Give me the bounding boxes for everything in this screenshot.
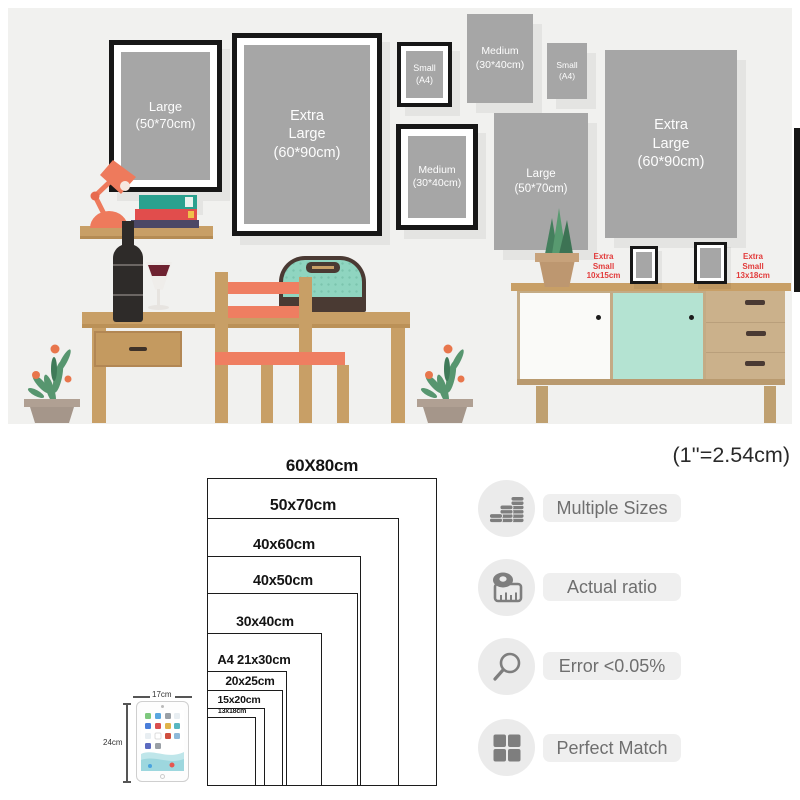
poster-label: Medium — [481, 45, 518, 58]
sideboard-drawers — [706, 291, 785, 383]
sideboard-door-white — [520, 293, 610, 380]
size-label-a4: A4 21x30cm — [217, 652, 290, 667]
tablet-camera — [161, 705, 164, 708]
handbag-handle-slot — [312, 266, 334, 269]
poster-size-label: (A4) — [559, 71, 575, 82]
drawer-handle — [745, 361, 765, 366]
poster-label: Large — [652, 135, 689, 154]
size-label-40x60: 40x60cm — [253, 536, 315, 553]
wall-poster-small-a4: Small (A4) — [547, 43, 587, 99]
wine — [148, 265, 170, 276]
poster-label: Large — [526, 167, 555, 182]
frame-size-label: (50*70cm) — [136, 116, 196, 133]
book-purple — [131, 220, 199, 228]
extra-small-label-right: Extra Small 13x18cm — [729, 252, 777, 281]
feature-label: Multiple Sizes — [556, 498, 667, 519]
wine-glass-foot — [148, 305, 169, 310]
book-teal — [139, 195, 197, 209]
dimension-dash-right — [175, 696, 192, 698]
sideboard-plant — [539, 206, 579, 254]
cropped-frame-edge — [794, 128, 800, 292]
chair-leg — [337, 365, 349, 423]
feature-badge-1 — [478, 480, 535, 537]
extra-small-label-left: Extra Small 10x15cm — [580, 252, 627, 281]
wall-poster-medium: Medium (30*40cm) — [467, 14, 533, 103]
door-knob — [689, 315, 694, 320]
tablet-width-label: 17cm — [152, 690, 172, 699]
label-line: 13x18cm — [729, 271, 777, 281]
size-rect-13x18 — [207, 717, 256, 786]
feature-label: Actual ratio — [567, 577, 657, 598]
label-line: Small — [729, 262, 777, 272]
sideboard-leg — [764, 386, 776, 423]
frame-label: Large — [149, 99, 182, 116]
wall-frame-medium: Medium (30*40cm) — [396, 124, 478, 230]
chair-slat — [222, 282, 302, 294]
magnifier-icon — [490, 650, 524, 684]
bottle-stripe — [113, 264, 143, 266]
label-line: 10x15cm — [580, 271, 627, 281]
dimension-dash-left — [133, 696, 150, 698]
size-label-15x20: 15x20cm — [218, 694, 261, 706]
bottle-stripe — [113, 294, 143, 296]
book-pages — [185, 197, 193, 207]
size-label-30x40: 30x40cm — [236, 613, 294, 629]
desk-drawer — [94, 331, 182, 367]
tablet-screen — [141, 710, 184, 771]
poster-size-label: (30*40cm) — [476, 59, 524, 72]
feature-pill-actual-ratio: Actual ratio — [543, 573, 681, 601]
frame-art: Extra Large (60*90cm) — [244, 45, 370, 224]
frame-size-label: (60*90cm) — [274, 144, 341, 163]
sideboard-door-mint — [613, 293, 703, 380]
drawer-divider — [706, 322, 785, 323]
chair-leg — [261, 365, 273, 423]
tablet-height-label: 24cm — [103, 738, 123, 747]
desk-leg-right — [391, 327, 405, 423]
sideboard-leg — [536, 386, 548, 423]
label-line: Small — [580, 262, 627, 272]
plant-pot-rim — [417, 399, 473, 407]
coins-icon — [489, 494, 525, 524]
feature-badge-2 — [478, 559, 535, 616]
sideboard-bottom-rail — [517, 379, 785, 385]
feature-badge-3 — [478, 638, 535, 695]
label-line: Extra — [580, 252, 627, 262]
unit-conversion-note: (1''=2.54cm) — [630, 443, 790, 468]
size-label-60x80: 60X80cm — [286, 456, 358, 476]
chair-back-post — [215, 272, 228, 423]
chair-seat — [215, 352, 345, 365]
plant-pot — [27, 407, 77, 423]
handbag-handle — [306, 262, 340, 273]
product-infographic: Large (50*70cm) Extra Large (60*90cm) Sm… — [0, 0, 800, 800]
grid-icon — [492, 733, 522, 763]
frame-label: Medium — [418, 164, 455, 177]
size-label-50x70: 50x70cm — [270, 497, 336, 515]
tabletop-frame-10x15 — [630, 246, 658, 284]
frame-label: Small — [413, 63, 436, 75]
feature-label: Perfect Match — [556, 738, 667, 759]
wall-poster-extra-large: Extra Large (60*90cm) — [605, 50, 737, 238]
tablet-illustration — [136, 701, 189, 782]
size-label-13x18: 13x18cm — [218, 708, 246, 715]
drawer-handle — [129, 347, 147, 351]
frame-size-label: (A4) — [416, 75, 433, 87]
size-label-20x25: 20x25cm — [225, 674, 274, 688]
tablet-home-button — [160, 774, 165, 779]
poster-size-label: (60*90cm) — [638, 153, 705, 172]
frame-label: Large — [288, 125, 325, 144]
frame-art: Small (A4) — [406, 51, 443, 98]
drawer-handle — [746, 331, 766, 336]
feature-badge-4 — [478, 719, 535, 776]
tabletop-frame-13x18 — [694, 242, 727, 284]
terracotta-pot-rim — [535, 253, 579, 262]
feature-pill-perfect-match: Perfect Match — [543, 734, 681, 762]
size-label-40x50: 40x50cm — [253, 573, 313, 589]
chair-slat — [222, 306, 302, 318]
frame-art — [700, 248, 721, 278]
drawer-divider — [706, 352, 785, 353]
label-line: Extra — [729, 252, 777, 262]
plant-pot-rim — [24, 399, 80, 407]
wall-frame-small-a4: Small (A4) — [397, 42, 452, 107]
desk-lamp — [76, 150, 138, 228]
frame-art — [636, 252, 652, 278]
poster-size-label: (50*70cm) — [514, 182, 567, 197]
poster-label: Extra — [654, 116, 688, 135]
frame-size-label: (30*40cm) — [413, 177, 461, 190]
poster-label: Small — [556, 60, 577, 71]
door-knob — [596, 315, 601, 320]
drawer-handle — [745, 300, 765, 305]
dimension-tick-bottom — [123, 781, 131, 783]
book-pages — [188, 211, 194, 218]
feature-pill-multiple-sizes: Multiple Sizes — [543, 494, 681, 522]
dimension-line-vertical — [126, 703, 128, 782]
wine-bottle — [113, 244, 143, 322]
book-red — [135, 209, 197, 220]
plant-pot — [420, 407, 470, 423]
frame-art: Medium (30*40cm) — [408, 136, 466, 218]
frame-label: Extra — [290, 107, 324, 126]
tape-measure-icon — [489, 571, 525, 605]
chair-back-post — [299, 277, 312, 423]
dimension-tick-top — [123, 703, 131, 705]
feature-label: Error <0.05% — [559, 656, 666, 677]
wall-frame-extra-large: Extra Large (60*90cm) — [232, 33, 382, 236]
feature-pill-error-rate: Error <0.05% — [543, 652, 681, 680]
